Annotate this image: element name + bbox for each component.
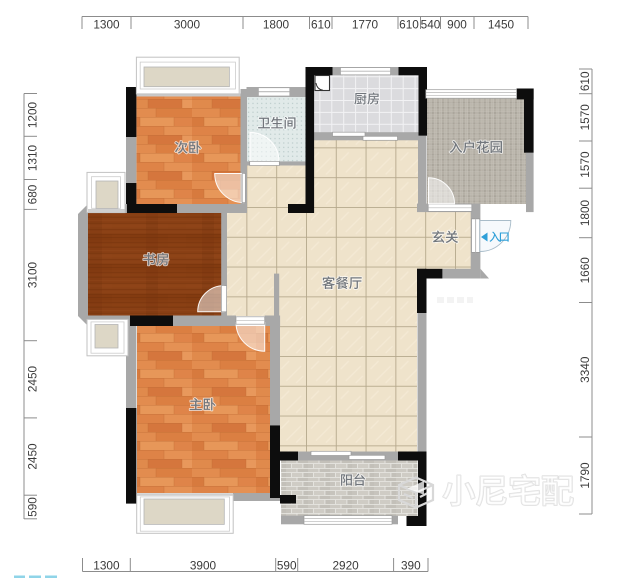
svg-text:3100: 3100	[26, 261, 40, 288]
svg-text:590: 590	[26, 497, 40, 517]
svg-text:1800: 1800	[578, 199, 592, 226]
svg-text:390: 390	[401, 559, 421, 573]
svg-text:1660: 1660	[578, 257, 592, 284]
svg-text:3340: 3340	[578, 356, 592, 383]
svg-text:590: 590	[277, 559, 297, 573]
svg-text:1300: 1300	[93, 18, 120, 32]
svg-text:610: 610	[399, 18, 419, 32]
svg-text:1790: 1790	[578, 462, 592, 489]
svg-text:680: 680	[26, 184, 40, 204]
svg-text:2920: 2920	[332, 559, 359, 573]
svg-text:1450: 1450	[488, 18, 515, 32]
svg-text:610: 610	[578, 71, 592, 91]
svg-text:1200: 1200	[26, 101, 40, 128]
svg-text:1570: 1570	[578, 151, 592, 178]
svg-text:610: 610	[311, 18, 331, 32]
svg-text:1770: 1770	[352, 18, 379, 32]
svg-text:540: 540	[421, 18, 441, 32]
svg-text:3000: 3000	[174, 18, 201, 32]
svg-text:1310: 1310	[26, 144, 40, 171]
svg-text:1570: 1570	[578, 104, 592, 131]
svg-text:900: 900	[447, 18, 467, 32]
svg-text:1300: 1300	[93, 559, 120, 573]
svg-text:1800: 1800	[263, 18, 290, 32]
svg-text:3900: 3900	[190, 559, 217, 573]
svg-text:2450: 2450	[26, 365, 40, 392]
svg-text:2450: 2450	[26, 443, 40, 470]
